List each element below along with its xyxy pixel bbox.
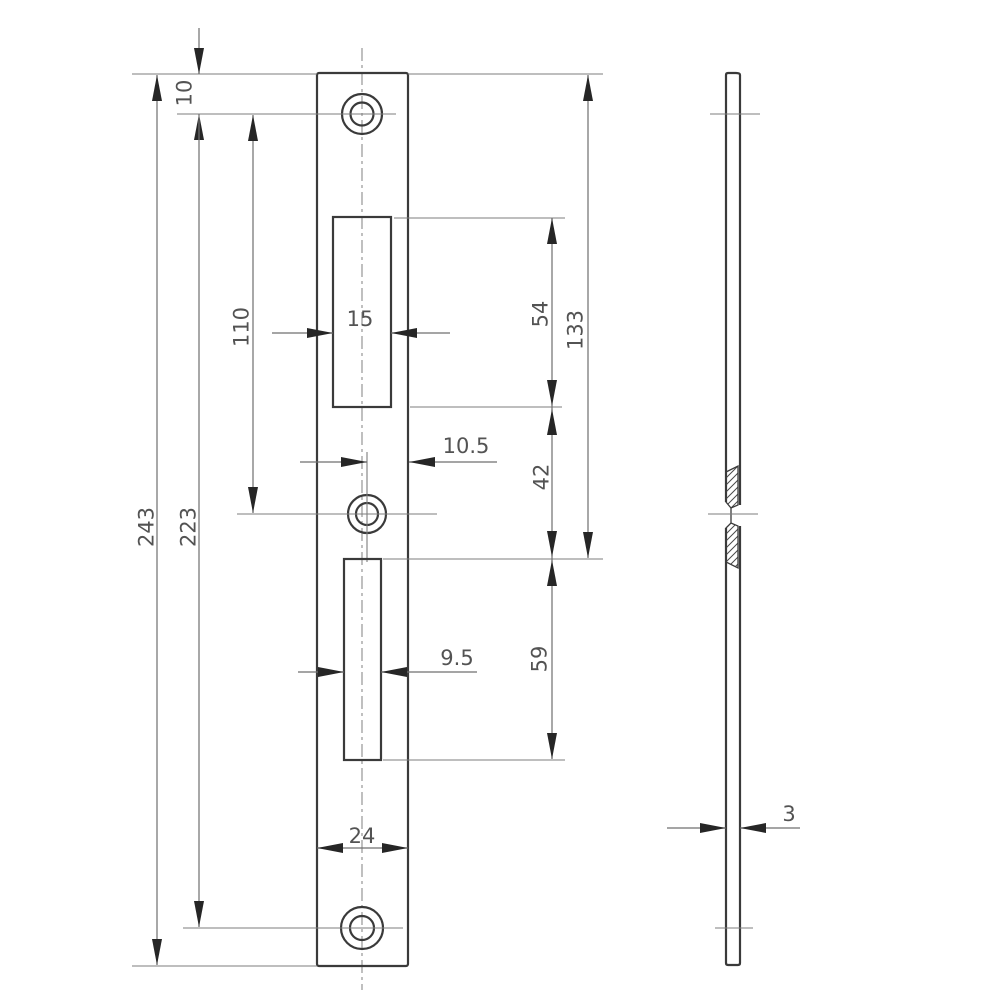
arrowhead — [583, 532, 593, 558]
dim-top-edge-to-top-hole-label: 10 — [172, 80, 196, 107]
arrowhead — [740, 823, 766, 833]
dim-bottom-cutout-width-label: 9.5 — [440, 646, 473, 670]
drawing-canvas: 243 10 223 110 133 54 42 — [0, 0, 1000, 1000]
arrowhead — [317, 843, 343, 853]
dim-plate-thickness-label: 3 — [782, 802, 795, 826]
dim-between-cutouts: 42 — [529, 407, 557, 559]
dim-top-cutout-height-label: 54 — [528, 301, 552, 328]
dim-center-hole-offset: 10.5 — [300, 434, 497, 467]
arrowhead — [547, 560, 557, 586]
arrowhead — [547, 409, 557, 435]
dim-between-cutouts-label: 42 — [529, 464, 553, 491]
dim-top-cutout-width-label: 15 — [347, 307, 374, 331]
side-view — [708, 73, 760, 965]
dim-screw-hole-spacing: 223 — [176, 114, 204, 927]
dim-bottom-cutout-width: 9.5 — [298, 646, 477, 677]
dim-bottom-cutout-height-label: 59 — [527, 646, 551, 673]
arrowhead — [307, 328, 333, 338]
dim-top-hole-to-center-hole: 110 — [229, 115, 258, 513]
arrowhead — [547, 531, 557, 557]
arrowhead — [152, 75, 162, 101]
technical-drawing: 243 10 223 110 133 54 42 — [0, 0, 1000, 1000]
arrowhead — [547, 733, 557, 759]
dim-bottom-cutout-height: 59 — [527, 559, 557, 759]
arrowhead — [547, 218, 557, 244]
dim-center-hole-offset-label: 10.5 — [443, 434, 490, 458]
dim-top-edge-to-bottom-cutout-label: 133 — [563, 310, 587, 350]
side-plate-outline — [726, 73, 740, 965]
dim-top-hole-to-center-hole-label: 110 — [229, 307, 253, 347]
dim-screw-hole-spacing-label: 223 — [176, 507, 200, 547]
arrowhead — [381, 667, 407, 677]
arrowhead — [391, 328, 417, 338]
arrowhead — [152, 939, 162, 965]
arrowhead — [194, 901, 204, 927]
arrowhead — [248, 115, 258, 141]
arrowhead — [382, 843, 408, 853]
arrowhead — [341, 457, 367, 467]
dim-top-cutout-height: 54 — [528, 218, 557, 407]
dim-plate-thickness: 3 — [667, 802, 800, 833]
arrowhead — [409, 457, 435, 467]
arrowhead — [583, 75, 593, 101]
arrowhead — [318, 667, 344, 677]
dim-plate-width-label: 24 — [349, 824, 376, 848]
hatch-section — [726, 466, 738, 568]
arrowhead — [700, 823, 726, 833]
dim-top-edge-to-bottom-cutout: 133 — [563, 75, 593, 558]
arrowhead — [248, 487, 258, 513]
arrowhead — [194, 48, 204, 74]
arrowhead — [547, 380, 557, 406]
dim-plate-length-label: 243 — [134, 507, 158, 547]
dim-plate-length: 243 — [134, 75, 162, 965]
center-hole — [348, 452, 386, 562]
dim-top-cutout-width: 15 — [272, 307, 450, 338]
